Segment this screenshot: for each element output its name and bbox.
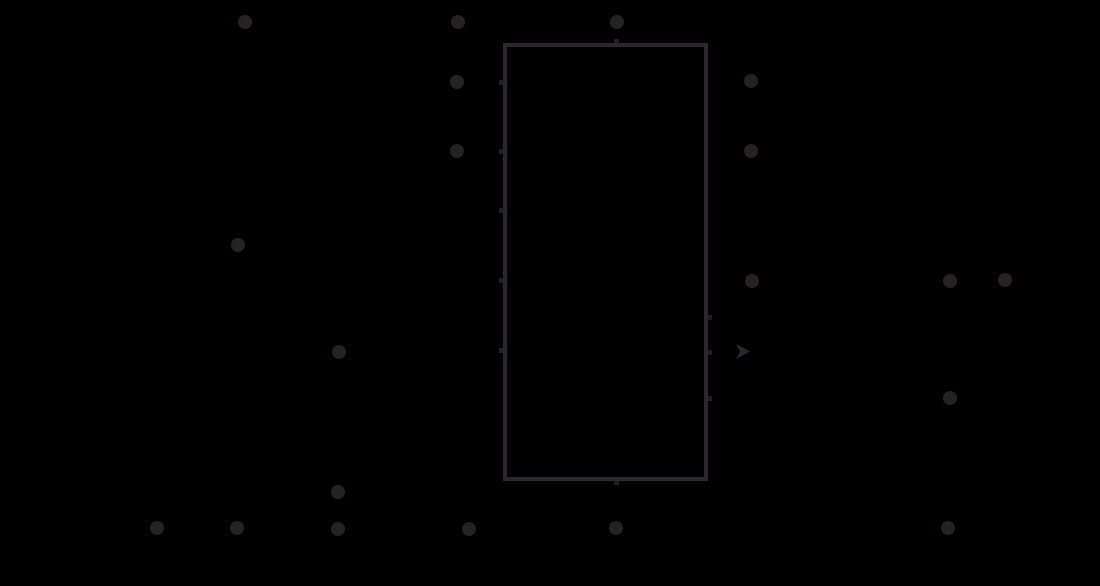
wire-stub (614, 481, 619, 485)
junction-dot (332, 345, 346, 359)
junction-dot (943, 391, 957, 405)
junction-dot (462, 522, 476, 536)
junction-dot (745, 274, 759, 288)
wire-stub (708, 315, 712, 320)
junction-dot (744, 144, 758, 158)
junction-dot (150, 521, 164, 535)
junction-dot (609, 521, 623, 535)
junction-dot (230, 521, 244, 535)
junction-dot (451, 15, 465, 29)
arrowhead-icon (736, 344, 750, 359)
junction-dot (450, 144, 464, 158)
junction-dot (998, 273, 1012, 287)
junction-dot (231, 238, 245, 252)
component-outline-rect (503, 43, 708, 481)
junction-dot (331, 485, 345, 499)
wire-stub (614, 39, 619, 43)
junction-dot (744, 74, 758, 88)
schematic-canvas (0, 0, 1100, 586)
wire-stub (499, 208, 503, 213)
wire-stub (499, 80, 503, 85)
junction-dot (450, 75, 464, 89)
junction-dot (610, 15, 624, 29)
wire-stub (499, 149, 503, 154)
junction-dot (238, 15, 252, 29)
junction-dot (331, 522, 345, 536)
wire-stub (708, 350, 712, 355)
wire-stub (499, 278, 503, 283)
junction-dot (941, 521, 955, 535)
wire-stub (499, 348, 503, 353)
junction-dot (943, 274, 957, 288)
wire-stub (708, 396, 712, 401)
